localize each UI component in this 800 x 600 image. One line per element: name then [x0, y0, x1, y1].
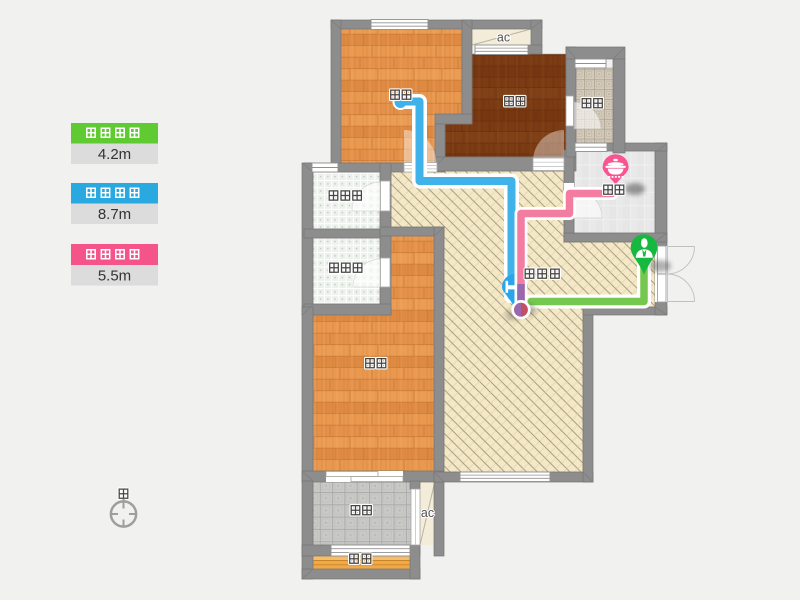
svg-text:4.2m: 4.2m: [98, 146, 131, 163]
svg-text:5.5m: 5.5m: [98, 268, 131, 285]
svg-text:ac: ac: [421, 506, 434, 520]
svg-text:8.7m: 8.7m: [98, 206, 131, 223]
svg-text:ac: ac: [497, 31, 510, 45]
